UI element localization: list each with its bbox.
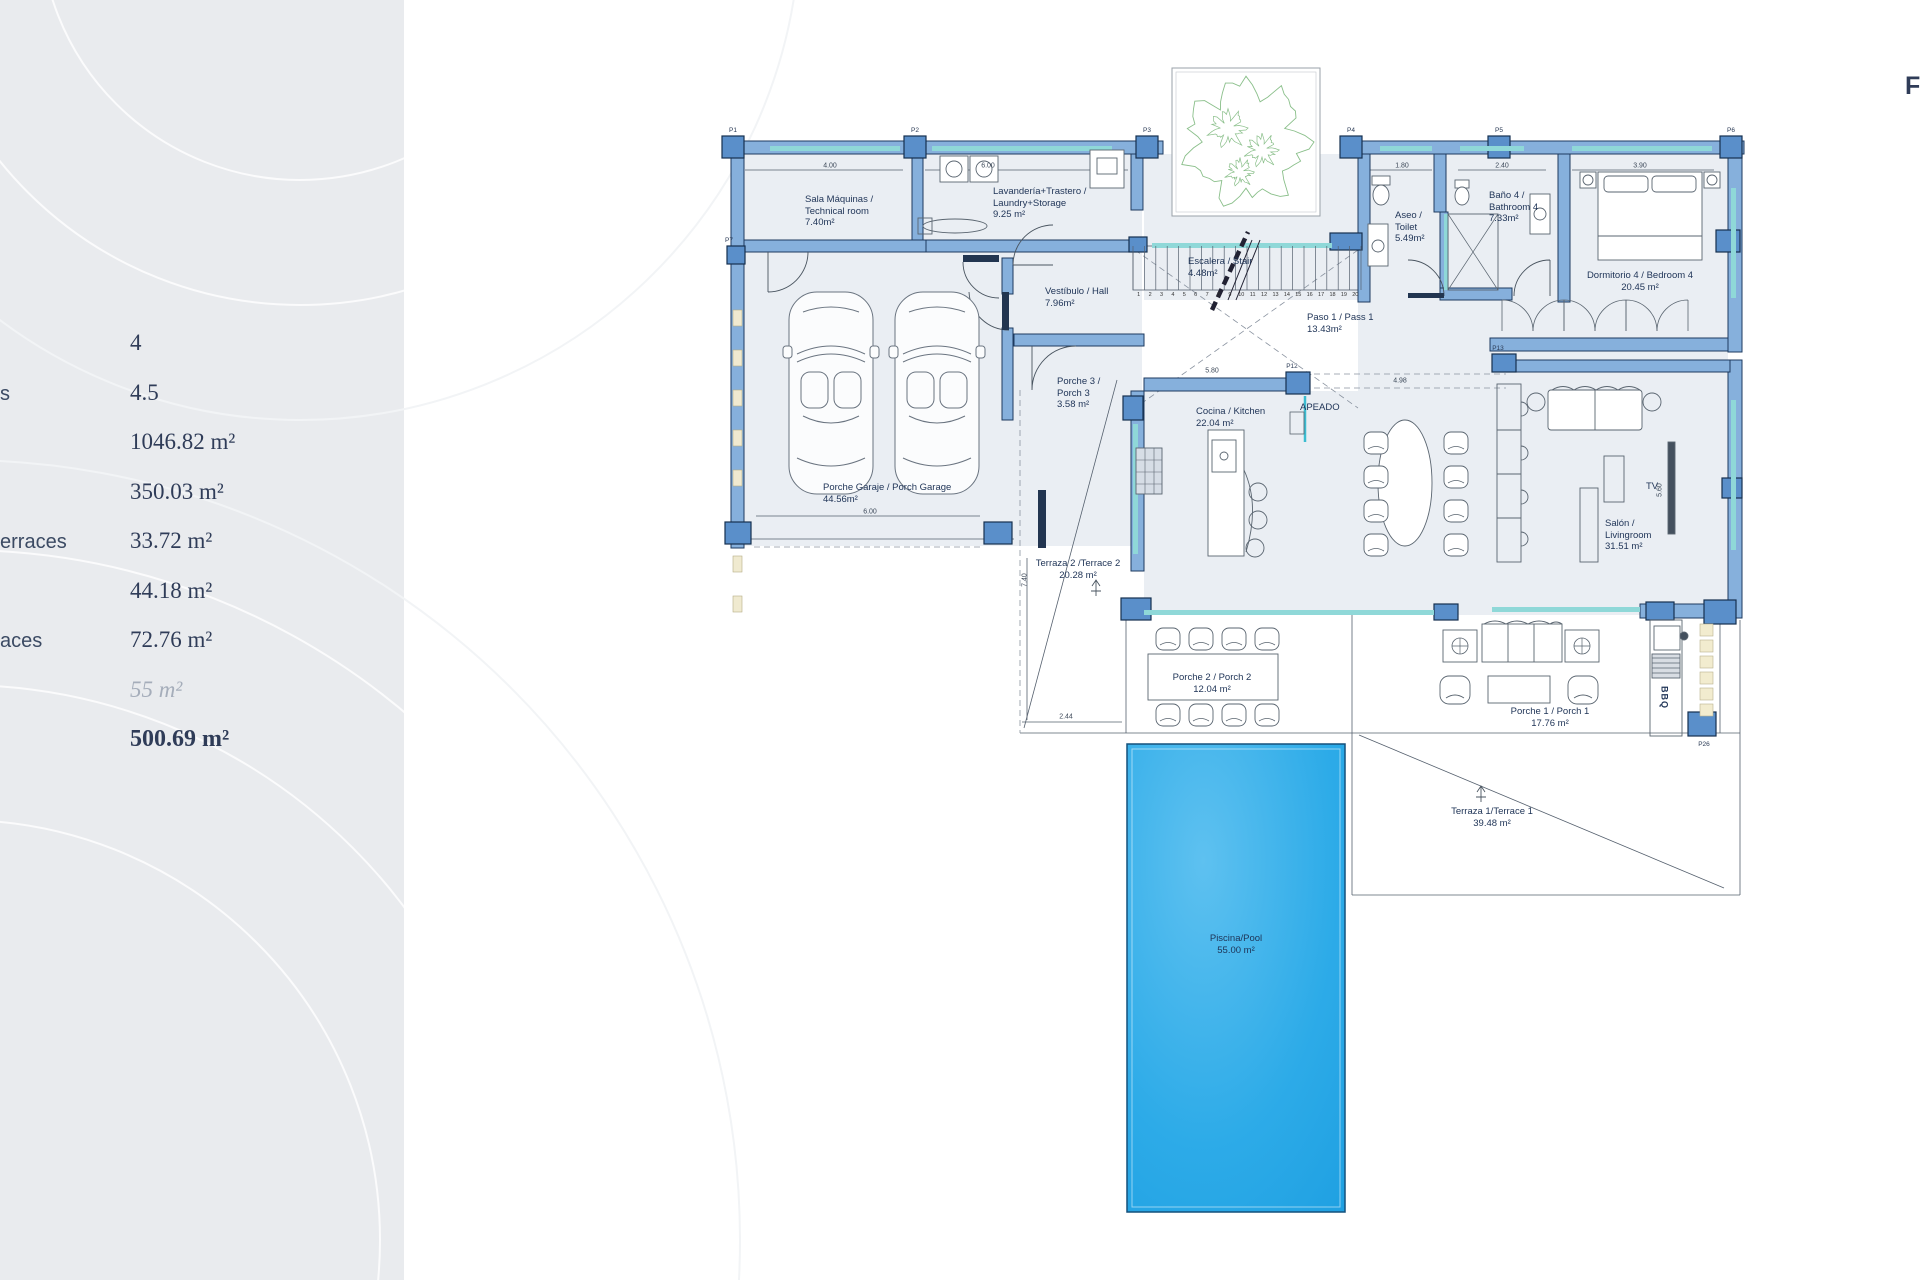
- porch2-furniture: [1148, 628, 1279, 726]
- tree-icon: [1172, 68, 1320, 216]
- clipped-right-text: F: [1905, 72, 1920, 101]
- planter-strip: [1700, 624, 1713, 716]
- dining-set: [1364, 420, 1468, 556]
- porch1-furniture: [1440, 620, 1688, 736]
- page: 4s4.51046.82 m²350.03 m²erraces33.72 m²4…: [0, 0, 1920, 1280]
- floorplan-drawing: [0, 0, 1920, 1280]
- bed-icon: [1580, 172, 1720, 260]
- pool: [1127, 744, 1345, 1212]
